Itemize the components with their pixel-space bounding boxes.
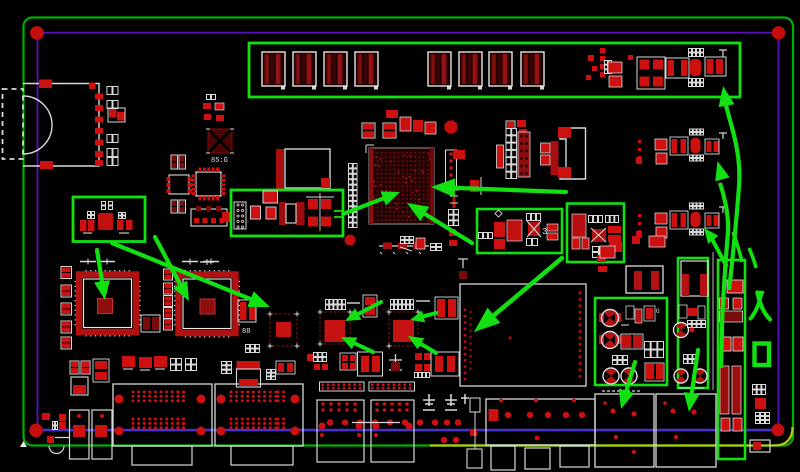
svg-text:G: G <box>656 308 660 315</box>
svg-text:85:G: 85:G <box>211 157 228 165</box>
svg-text:3: 3 <box>542 227 547 237</box>
svg-text:88: 88 <box>242 328 250 336</box>
